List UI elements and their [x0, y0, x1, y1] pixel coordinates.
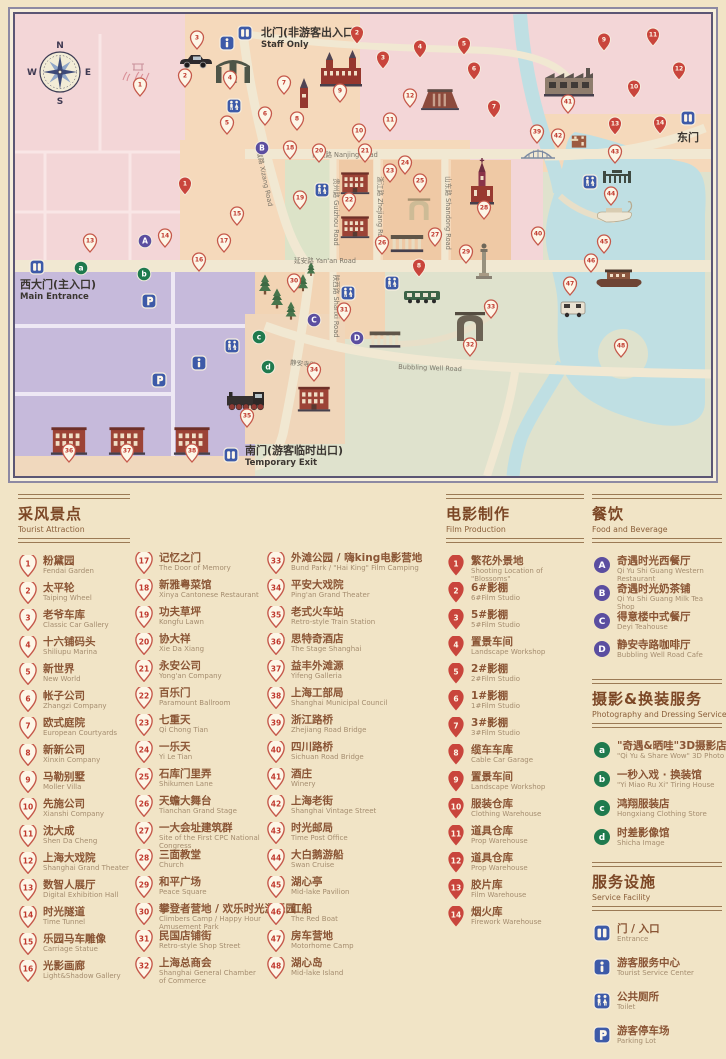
legend-item-text: 门 / 入口Entrance	[617, 923, 660, 943]
legend-marker-icon: D	[592, 639, 612, 661]
svg-text:8: 8	[25, 749, 30, 758]
legend-marker-icon	[592, 923, 612, 945]
legend-item-text: 道具仓库Prop Warehouse	[471, 825, 528, 845]
legend-item-text: 上海大戏院Shanghai Grand Theater	[43, 852, 129, 872]
legend-items: 门 / 入口Entrance游客服务中心Tourist Service Cent…	[592, 923, 722, 1059]
legend-marker-icon: 23	[134, 714, 154, 736]
legend-item-en: Time Post Office	[291, 834, 348, 842]
legend-item-text: 记忆之门The Door of Memory	[159, 552, 231, 572]
legend-marker-icon: 26	[134, 795, 154, 817]
legend-item-en: Cable Car Garage	[471, 756, 533, 764]
legend-item-zh: 永安公司	[159, 660, 222, 672]
building-icon	[298, 387, 330, 412]
svg-text:32: 32	[139, 962, 149, 971]
legend-item-zh: 公共厕所	[617, 991, 659, 1003]
legend-item-attractions-41: 41酒庄Winery	[266, 768, 442, 795]
legend-marker-icon: 4	[18, 636, 38, 658]
legend-item-en: 1#Film Studio	[471, 702, 520, 710]
legend-item-attractions-47: 47房车营地Motorhome Camp	[266, 930, 442, 957]
svg-text:5: 5	[225, 120, 229, 127]
park-map-canvas: NSEW南京路 Nanjing Road延安路 Yan'an Road静安寺路B…	[15, 14, 711, 476]
legend-item-en: The Door of Memory	[159, 564, 231, 572]
map-marker-photo-a: a	[74, 261, 88, 275]
entrance-icon	[30, 260, 44, 274]
legend-section-header-attractions: 采风景点Tourist Attraction	[18, 494, 130, 543]
legend-item-attractions-19: 19功夫草坪Kongfu Lawn	[134, 606, 264, 633]
legend-item-zh: 奇遇时光西餐厅	[617, 555, 722, 567]
legend-item-en: Classic Car Gallery	[43, 621, 109, 629]
toilet-icon	[341, 286, 355, 300]
svg-text:36: 36	[271, 638, 281, 647]
legend-section-header-photo: 摄影&换装服务Photography and Dressing Services	[592, 679, 722, 728]
gate-label-east: 东门	[677, 130, 699, 144]
legend-item-en: Kongfu Lawn	[159, 618, 204, 626]
legend-item-attractions-6: 6帐子公司Zhangzi Company	[18, 690, 130, 717]
legend-item-film-6: 61#影棚1#Film Studio	[446, 690, 584, 717]
svg-text:38: 38	[271, 692, 281, 701]
legend-item-text: 置景车间Landscape Workshop	[471, 771, 545, 791]
legend-item-text: 静安寺路咖啡厅Bubbling Well Road Cafe	[617, 639, 703, 659]
svg-text:42: 42	[554, 133, 562, 140]
legend-item-food-A: A奇遇时光西餐厅Qi Yu Shi Guang Western Restaura…	[592, 555, 722, 583]
legend-item-attractions-4: 4十六铺码头Shiliupu Marina	[18, 636, 130, 663]
legend-item-zh: 四川路桥	[291, 741, 364, 753]
legend-item-attractions-27: 27一大会址建筑群Site of the First CPC National …	[134, 822, 264, 849]
gate-sublabel-west: Main Entrance	[20, 292, 89, 302]
legend-item-text: 大白鹅游船Swan Cruise	[291, 849, 344, 869]
svg-text:E: E	[85, 68, 91, 78]
legend-item-film-9: 9置景车间Landscape Workshop	[446, 771, 584, 798]
svg-text:A: A	[599, 561, 606, 571]
legend-item-zh: 光影画廊	[43, 960, 121, 972]
legend-item-en: Swan Cruise	[291, 861, 344, 869]
legend-item-text: 思特奇酒店The Stage Shanghai	[291, 633, 361, 653]
legend-item-film-12: 12道具仓库Prop Warehouse	[446, 852, 584, 879]
legend-item-text: 新新公司Xinxin Company	[43, 744, 100, 764]
legend-item-text: 繁花外景地Shooting Location of "Blossoms"	[471, 555, 584, 583]
legend-item-text: 上海工部局Shanghai Municipal Council	[291, 687, 387, 707]
legend-item-text: 粉黛园Fendai Garden	[43, 555, 94, 575]
legend-item-service-parking: 游客停车场Parking Lot	[592, 1025, 722, 1059]
svg-text:A: A	[142, 237, 148, 246]
legend-item-zh: 新世界	[43, 663, 81, 675]
svg-text:40: 40	[534, 231, 542, 238]
legend-item-zh: 帐子公司	[43, 690, 107, 702]
map-marker-photo-d: d	[261, 360, 275, 374]
svg-text:7: 7	[492, 104, 496, 111]
svg-text:20: 20	[139, 638, 149, 647]
svg-text:W: W	[27, 68, 37, 78]
map-marker-food-B: B	[255, 141, 269, 155]
legend-marker-icon: 6	[18, 690, 38, 712]
legend-item-text: 民国店铺街Retro-style Shop Street	[159, 930, 240, 950]
svg-text:21: 21	[139, 665, 149, 674]
legend-item-attractions-10: 10先施公司Xianshi Company	[18, 798, 130, 825]
legend-marker-icon: 16	[18, 960, 38, 982]
legend-item-text: 游客服务中心Tourist Service Center	[617, 957, 694, 977]
legend-marker-icon: 29	[134, 876, 154, 898]
legend-item-zh: 记忆之门	[159, 552, 231, 564]
legend-marker-icon: b	[592, 769, 612, 791]
legend-item-text: 先施公司Xianshi Company	[43, 798, 104, 818]
road-label: 山东路 Shandong Road	[444, 176, 453, 250]
building-icon	[341, 216, 370, 238]
toilet-icon	[385, 276, 399, 290]
svg-text:42: 42	[271, 800, 281, 809]
legend-item-zh: 太平轮	[43, 582, 92, 594]
legend-item-en: 5#Film Studio	[471, 621, 520, 629]
svg-text:4: 4	[453, 641, 458, 650]
svg-text:N: N	[56, 41, 64, 51]
legend-item-zh: 新新公司	[43, 744, 100, 756]
legend-item-zh: 上海总商会	[159, 957, 264, 969]
svg-text:10: 10	[451, 803, 461, 812]
legend-item-text: 沈大成Shen Da Cheng	[43, 825, 97, 845]
legend-item-zh: 一秒入戏 · 换装馆	[617, 769, 714, 781]
svg-text:8: 8	[453, 749, 458, 758]
legend-item-attractions-33: 33外滩公园 / 嗨king电影营地Bund Park / "Hai King"…	[266, 552, 442, 579]
legend-item-zh: 七重天	[159, 714, 208, 726]
legend-item-text: 益丰外滩源Yifeng Galleria	[291, 660, 344, 680]
legend-column-attractions-1: 采风景点Tourist Attraction1粉黛园Fendai Garden2…	[18, 494, 130, 987]
legend-item-en: Site of the First CPC National Congress	[159, 834, 264, 850]
svg-text:1: 1	[183, 181, 187, 188]
svg-text:47: 47	[566, 281, 574, 288]
legend-marker-icon	[592, 991, 612, 1013]
legend-item-zh: 大白鹅游船	[291, 849, 344, 861]
legend-item-en: Xie Da Xiang	[159, 645, 204, 653]
legend-item-zh: 民国店铺街	[159, 930, 240, 942]
legend-item-en: Clothing Warehouse	[471, 810, 541, 818]
svg-text:S: S	[57, 97, 63, 107]
svg-text:D: D	[598, 645, 605, 655]
legend-item-en: Peace Square	[159, 888, 207, 896]
legend-item-en: Retro-style Train Station	[291, 618, 375, 626]
legend-item-attractions-39: 39浙江路桥Zhejiang Road Bridge	[266, 714, 442, 741]
legend-marker-icon: 13	[446, 879, 466, 901]
legend-item-text: 鸿翔服装店Hongxiang Clothing Store	[617, 798, 707, 818]
svg-text:b: b	[141, 270, 147, 279]
svg-text:14: 14	[23, 911, 33, 920]
svg-text:33: 33	[487, 304, 495, 311]
svg-text:7: 7	[282, 80, 286, 87]
legend-item-en: New World	[43, 675, 81, 683]
legend-item-zh: 游客停车场	[617, 1025, 670, 1037]
legend-item-zh: 时光邮局	[291, 822, 348, 834]
legend-item-en: Fendai Garden	[43, 567, 94, 575]
legend-marker-icon: 12	[446, 852, 466, 874]
svg-text:21: 21	[361, 148, 369, 155]
legend-item-zh: 酒庄	[291, 768, 315, 780]
legend-item-text: 置景车间Landscape Workshop	[471, 636, 545, 656]
legend-marker-icon: 28	[134, 849, 154, 871]
legend-item-attractions-25: 25石库门里弄Shikumen Lane	[134, 768, 264, 795]
legend-item-en: Xinxin Company	[43, 756, 100, 764]
legend-item-food-B: B奇遇时光奶茶铺Qi Yu Shi Guang Milk Tea Shop	[592, 583, 722, 611]
legend-item-text: 时光邮局Time Post Office	[291, 822, 348, 842]
legend-item-attractions-44: 44大白鹅游船Swan Cruise	[266, 849, 442, 876]
legend-item-en: Parking Lot	[617, 1037, 670, 1045]
legend-marker-icon: 7	[18, 717, 38, 739]
legend-section-header-food: 餐饮Food and Beverage	[592, 494, 722, 543]
legend-marker-icon: 3	[446, 609, 466, 631]
svg-text:3: 3	[195, 35, 199, 42]
svg-text:45: 45	[271, 881, 281, 890]
legend-item-attractions-16: 16光影画廊Light&Shadow Gallery	[18, 960, 130, 987]
section-title-zh: 餐饮	[592, 499, 722, 525]
map-marker-food-A: A	[138, 234, 152, 248]
legend-item-zh: 奇遇时光奶茶铺	[617, 583, 722, 595]
legend-section-header-film: 电影制作Film Production	[446, 494, 584, 543]
legend-item-text: 酒庄Winery	[291, 768, 315, 788]
legend-marker-icon	[592, 957, 612, 979]
svg-text:24: 24	[139, 746, 149, 755]
legend-item-attractions-21: 21永安公司Yong'an Company	[134, 660, 264, 687]
gate-label-west: 西大门(主入口)	[20, 277, 96, 291]
legend-item-en: The Stage Shanghai	[291, 645, 361, 653]
legend-item-zh: 天蟾大舞台	[159, 795, 237, 807]
legend-item-zh: 百乐门	[159, 687, 230, 699]
legend-marker-icon: 40	[266, 741, 286, 763]
svg-text:6: 6	[453, 695, 458, 704]
legend-item-en: Shiliupu Marina	[43, 648, 97, 656]
svg-text:23: 23	[139, 719, 149, 728]
svg-text:7: 7	[453, 722, 458, 731]
legend-item-en: Ping'an Grand Theater	[291, 591, 370, 599]
legend-item-en: Light&Shadow Gallery	[43, 972, 121, 980]
legend-item-attractions-48: 48湖心岛Mid-lake Island	[266, 957, 442, 984]
map-marker-photo-c: c	[252, 330, 266, 344]
legend-item-text: 游客停车场Parking Lot	[617, 1025, 670, 1045]
svg-text:25: 25	[139, 773, 149, 782]
svg-text:16: 16	[23, 965, 33, 974]
legend-item-text: 功夫草坪Kongfu Lawn	[159, 606, 204, 626]
legend-item-film-3: 35#影棚5#Film Studio	[446, 609, 584, 636]
svg-text:13: 13	[86, 238, 94, 245]
legend-marker-icon: 3	[18, 609, 38, 631]
legend-item-zh: 欧式庭院	[43, 717, 117, 729]
legend-item-attractions-28: 28三面教堂Church	[134, 849, 264, 876]
legend-item-en: Paramount Ballroom	[159, 699, 230, 707]
legend-item-text: 时差影像馆Shicha Image	[617, 827, 670, 847]
svg-text:19: 19	[139, 611, 149, 620]
svg-text:28: 28	[480, 205, 488, 212]
legend-item-text: 马勒别墅Moller Villa	[43, 771, 85, 791]
toilet-icon	[227, 99, 241, 113]
legend-item-text: 上海老街Shanghai Vintage Street	[291, 795, 376, 815]
svg-text:1: 1	[25, 560, 30, 569]
legend-marker-icon: 2	[18, 582, 38, 604]
legend-item-attractions-22: 22百乐门Paramount Ballroom	[134, 687, 264, 714]
legend-item-zh: 和平广场	[159, 876, 207, 888]
legend-item-zh: 十六铺码头	[43, 636, 97, 648]
legend-item-text: 烟火库Firework Warehouse	[471, 906, 542, 926]
legend-item-en: Zhangzi Company	[43, 702, 107, 710]
legend-marker-icon: 8	[446, 744, 466, 766]
legend-marker-icon: 27	[134, 822, 154, 844]
legend-item-text: 浙江路桥Zhejiang Road Bridge	[291, 714, 366, 734]
legend-item-zh: 2#影棚	[471, 663, 520, 675]
svg-text:22: 22	[345, 197, 353, 204]
legend-item-attractions-30: 30攀登者营地 / 欢乐时光游乐园Climbers Camp / Happy H…	[134, 903, 264, 930]
legend-item-film-5: 52#影棚2#Film Studio	[446, 663, 584, 690]
svg-text:12: 12	[451, 857, 461, 866]
legend-marker-icon: 8	[18, 744, 38, 766]
legend-item-attractions-24: 24一乐天Yi Le Tian	[134, 741, 264, 768]
legend-items: 33外滩公园 / 嗨king电影营地Bund Park / "Hai King"…	[266, 552, 442, 984]
legend-item-photo-c: c鸿翔服装店Hongxiang Clothing Store	[592, 798, 722, 827]
legend-item-text: 老式火车站Retro-style Train Station	[291, 606, 375, 626]
legend-item-attractions-43: 43时光邮局Time Post Office	[266, 822, 442, 849]
svg-text:37: 37	[271, 665, 281, 674]
legend-item-text: 乐园马车雕像Carriage Statue	[43, 933, 106, 953]
svg-text:9: 9	[602, 37, 606, 44]
legend-marker-icon: 7	[446, 717, 466, 739]
legend-item-film-8: 8缆车车库Cable Car Garage	[446, 744, 584, 771]
legend-column-attractions-2: 17记忆之门The Door of Memory18新雅粤菜馆Xinya Can…	[134, 494, 264, 984]
legend-marker-icon: 45	[266, 876, 286, 898]
legend-marker-icon: 47	[266, 930, 286, 952]
legend-item-attractions-20: 20协大祥Xie Da Xiang	[134, 633, 264, 660]
legend-item-en: Firework Warehouse	[471, 918, 542, 926]
legend-item-en: Shanghai Vintage Street	[291, 807, 376, 815]
info-icon	[192, 356, 206, 370]
legend-items: a"奇遇&晒哇"3D摄影店"Qi Yu & Share Wow" 3D Phot…	[592, 740, 722, 856]
svg-text:43: 43	[271, 827, 281, 836]
legend-item-attractions-42: 42上海老街Shanghai Vintage Street	[266, 795, 442, 822]
legend-item-text: 和平广场Peace Square	[159, 876, 207, 896]
legend-item-en: Carriage Statue	[43, 945, 106, 953]
legend-marker-icon: 24	[134, 741, 154, 763]
shop-icon	[571, 136, 587, 148]
legend-item-text: 道具仓库Prop Warehouse	[471, 852, 528, 872]
legend-marker-icon: 41	[266, 768, 286, 790]
road-label: 浙江路 Zhejiang Road	[376, 176, 385, 245]
legend-marker-icon: 4	[446, 636, 466, 658]
colonnade-icon	[370, 332, 401, 348]
legend-item-zh: 乐园马车雕像	[43, 933, 106, 945]
legend-item-zh: 3#影棚	[471, 717, 520, 729]
legend-marker-icon: 48	[266, 957, 286, 979]
legend-item-zh: 时光隧道	[43, 906, 85, 918]
svg-text:a: a	[599, 746, 605, 756]
legend-item-text: 胶片库Film Warehouse	[471, 879, 526, 899]
legend-item-text: 太平轮Taiping Wheel	[43, 582, 92, 602]
legend-item-en: Mid-lake Pavilion	[291, 888, 349, 896]
legend-items: 1繁花外景地Shooting Location of "Blossoms"26#…	[446, 555, 584, 933]
svg-text:B: B	[599, 589, 606, 599]
svg-text:37: 37	[123, 448, 131, 455]
svg-text:6: 6	[472, 66, 476, 73]
svg-text:31: 31	[340, 307, 348, 314]
legend-item-zh: 游客服务中心	[617, 957, 694, 969]
legend-item-attractions-2: 2太平轮Taiping Wheel	[18, 582, 130, 609]
info-icon	[220, 36, 234, 50]
legend-item-attractions-23: 23七重天Qi Chong Tian	[134, 714, 264, 741]
svg-text:30: 30	[290, 278, 298, 285]
legend-item-en: Sichuan Road Bridge	[291, 753, 364, 761]
svg-text:D: D	[354, 334, 360, 343]
legend-item-attractions-18: 18新雅粤菜馆Xinya Cantonese Restaurant	[134, 579, 264, 606]
legend-marker-icon: 32	[134, 957, 154, 979]
map-marker-food-C: C	[307, 313, 321, 327]
svg-text:35: 35	[243, 413, 251, 420]
legend-item-food-C: C得意楼中式餐厅Deyi Teahouse	[592, 611, 722, 639]
building-icon	[341, 172, 370, 194]
legend-item-en: Deyi Teahouse	[617, 623, 691, 631]
legend-marker-icon: 6	[446, 690, 466, 712]
legend-item-zh: 鸿翔服装店	[617, 798, 707, 810]
legend-item-zh: 繁花外景地	[471, 555, 584, 567]
rule	[446, 538, 584, 543]
legend-marker-icon: 44	[266, 849, 286, 871]
svg-text:8: 8	[417, 263, 421, 270]
svg-text:5: 5	[25, 668, 30, 677]
legend-marker-icon: 39	[266, 714, 286, 736]
svg-text:19: 19	[296, 195, 304, 202]
svg-text:b: b	[599, 775, 606, 785]
legend-item-film-7: 73#影棚3#Film Studio	[446, 717, 584, 744]
svg-text:43: 43	[611, 149, 619, 156]
svg-text:3: 3	[453, 614, 458, 623]
svg-text:11: 11	[649, 32, 657, 39]
svg-text:46: 46	[587, 258, 595, 265]
legend-column-film: 电影制作Film Production1繁花外景地Shooting Locati…	[446, 494, 584, 933]
legend-item-zh: 烟火库	[471, 906, 542, 918]
legend-section-header-service: 服务设施Service Facility	[592, 862, 722, 911]
legend-item-film-1: 1繁花外景地Shooting Location of "Blossoms"	[446, 555, 584, 582]
section-title-en: Service Facility	[592, 893, 722, 906]
svg-text:23: 23	[386, 168, 394, 175]
legend-item-attractions-8: 8新新公司Xinxin Company	[18, 744, 130, 771]
svg-text:18: 18	[139, 584, 149, 593]
legend-item-food-D: D静安寺路咖啡厅Bubbling Well Road Cafe	[592, 639, 722, 667]
legend-item-text: 数智人展厅Digital Exhibition Hall	[43, 879, 118, 899]
legend-item-service-toilet: 公共厕所Toilet	[592, 991, 722, 1025]
legend-item-text: 奇遇时光西餐厅Qi Yu Shi Guang Western Restauran…	[617, 555, 722, 583]
legend-marker-icon: a	[592, 740, 612, 762]
svg-text:4: 4	[418, 44, 422, 51]
legend-item-zh: 红船	[291, 903, 338, 915]
legend-item-en: Qi Yu Shi Guang Milk Tea Shop	[617, 595, 722, 611]
legend-item-text: 得意楼中式餐厅Deyi Teahouse	[617, 611, 691, 631]
legend-marker-icon: d	[592, 827, 612, 849]
legend-item-zh: 道具仓库	[471, 825, 528, 837]
svg-text:a: a	[78, 264, 83, 273]
legend-item-attractions-12: 12上海大戏院Shanghai Grand Theater	[18, 852, 130, 879]
legend-items: 1粉黛园Fendai Garden2太平轮Taiping Wheel3老爷车库C…	[18, 555, 130, 987]
legend-item-text: 欧式庭院European Courtyards	[43, 717, 117, 737]
legend-item-en: Toilet	[617, 1003, 659, 1011]
svg-text:33: 33	[271, 557, 281, 566]
svg-text:30: 30	[139, 908, 149, 917]
legend-marker-icon: 11	[18, 825, 38, 847]
svg-text:27: 27	[431, 232, 439, 239]
legend-item-film-13: 13胶片库Film Warehouse	[446, 879, 584, 906]
svg-text:14: 14	[161, 233, 169, 240]
legend-item-attractions-32: 32上海总商会Shanghai General Chamber of Comme…	[134, 957, 264, 984]
legend-item-en: Taiping Wheel	[43, 594, 92, 602]
colonnade-icon	[391, 235, 423, 252]
legend-item-en: Shanghai General Chamber of Commerce	[159, 969, 264, 985]
legend-item-en: Yifeng Galleria	[291, 672, 344, 680]
legend-item-en: Tourist Service Center	[617, 969, 694, 977]
legend-item-attractions-15: 15乐园马车雕像Carriage Statue	[18, 933, 130, 960]
legend-item-zh: 上海老街	[291, 795, 376, 807]
legend-item-attractions-1: 1粉黛园Fendai Garden	[18, 555, 130, 582]
legend-item-zh: 三面教堂	[159, 849, 201, 861]
legend-item-text: 永安公司Yong'an Company	[159, 660, 222, 680]
